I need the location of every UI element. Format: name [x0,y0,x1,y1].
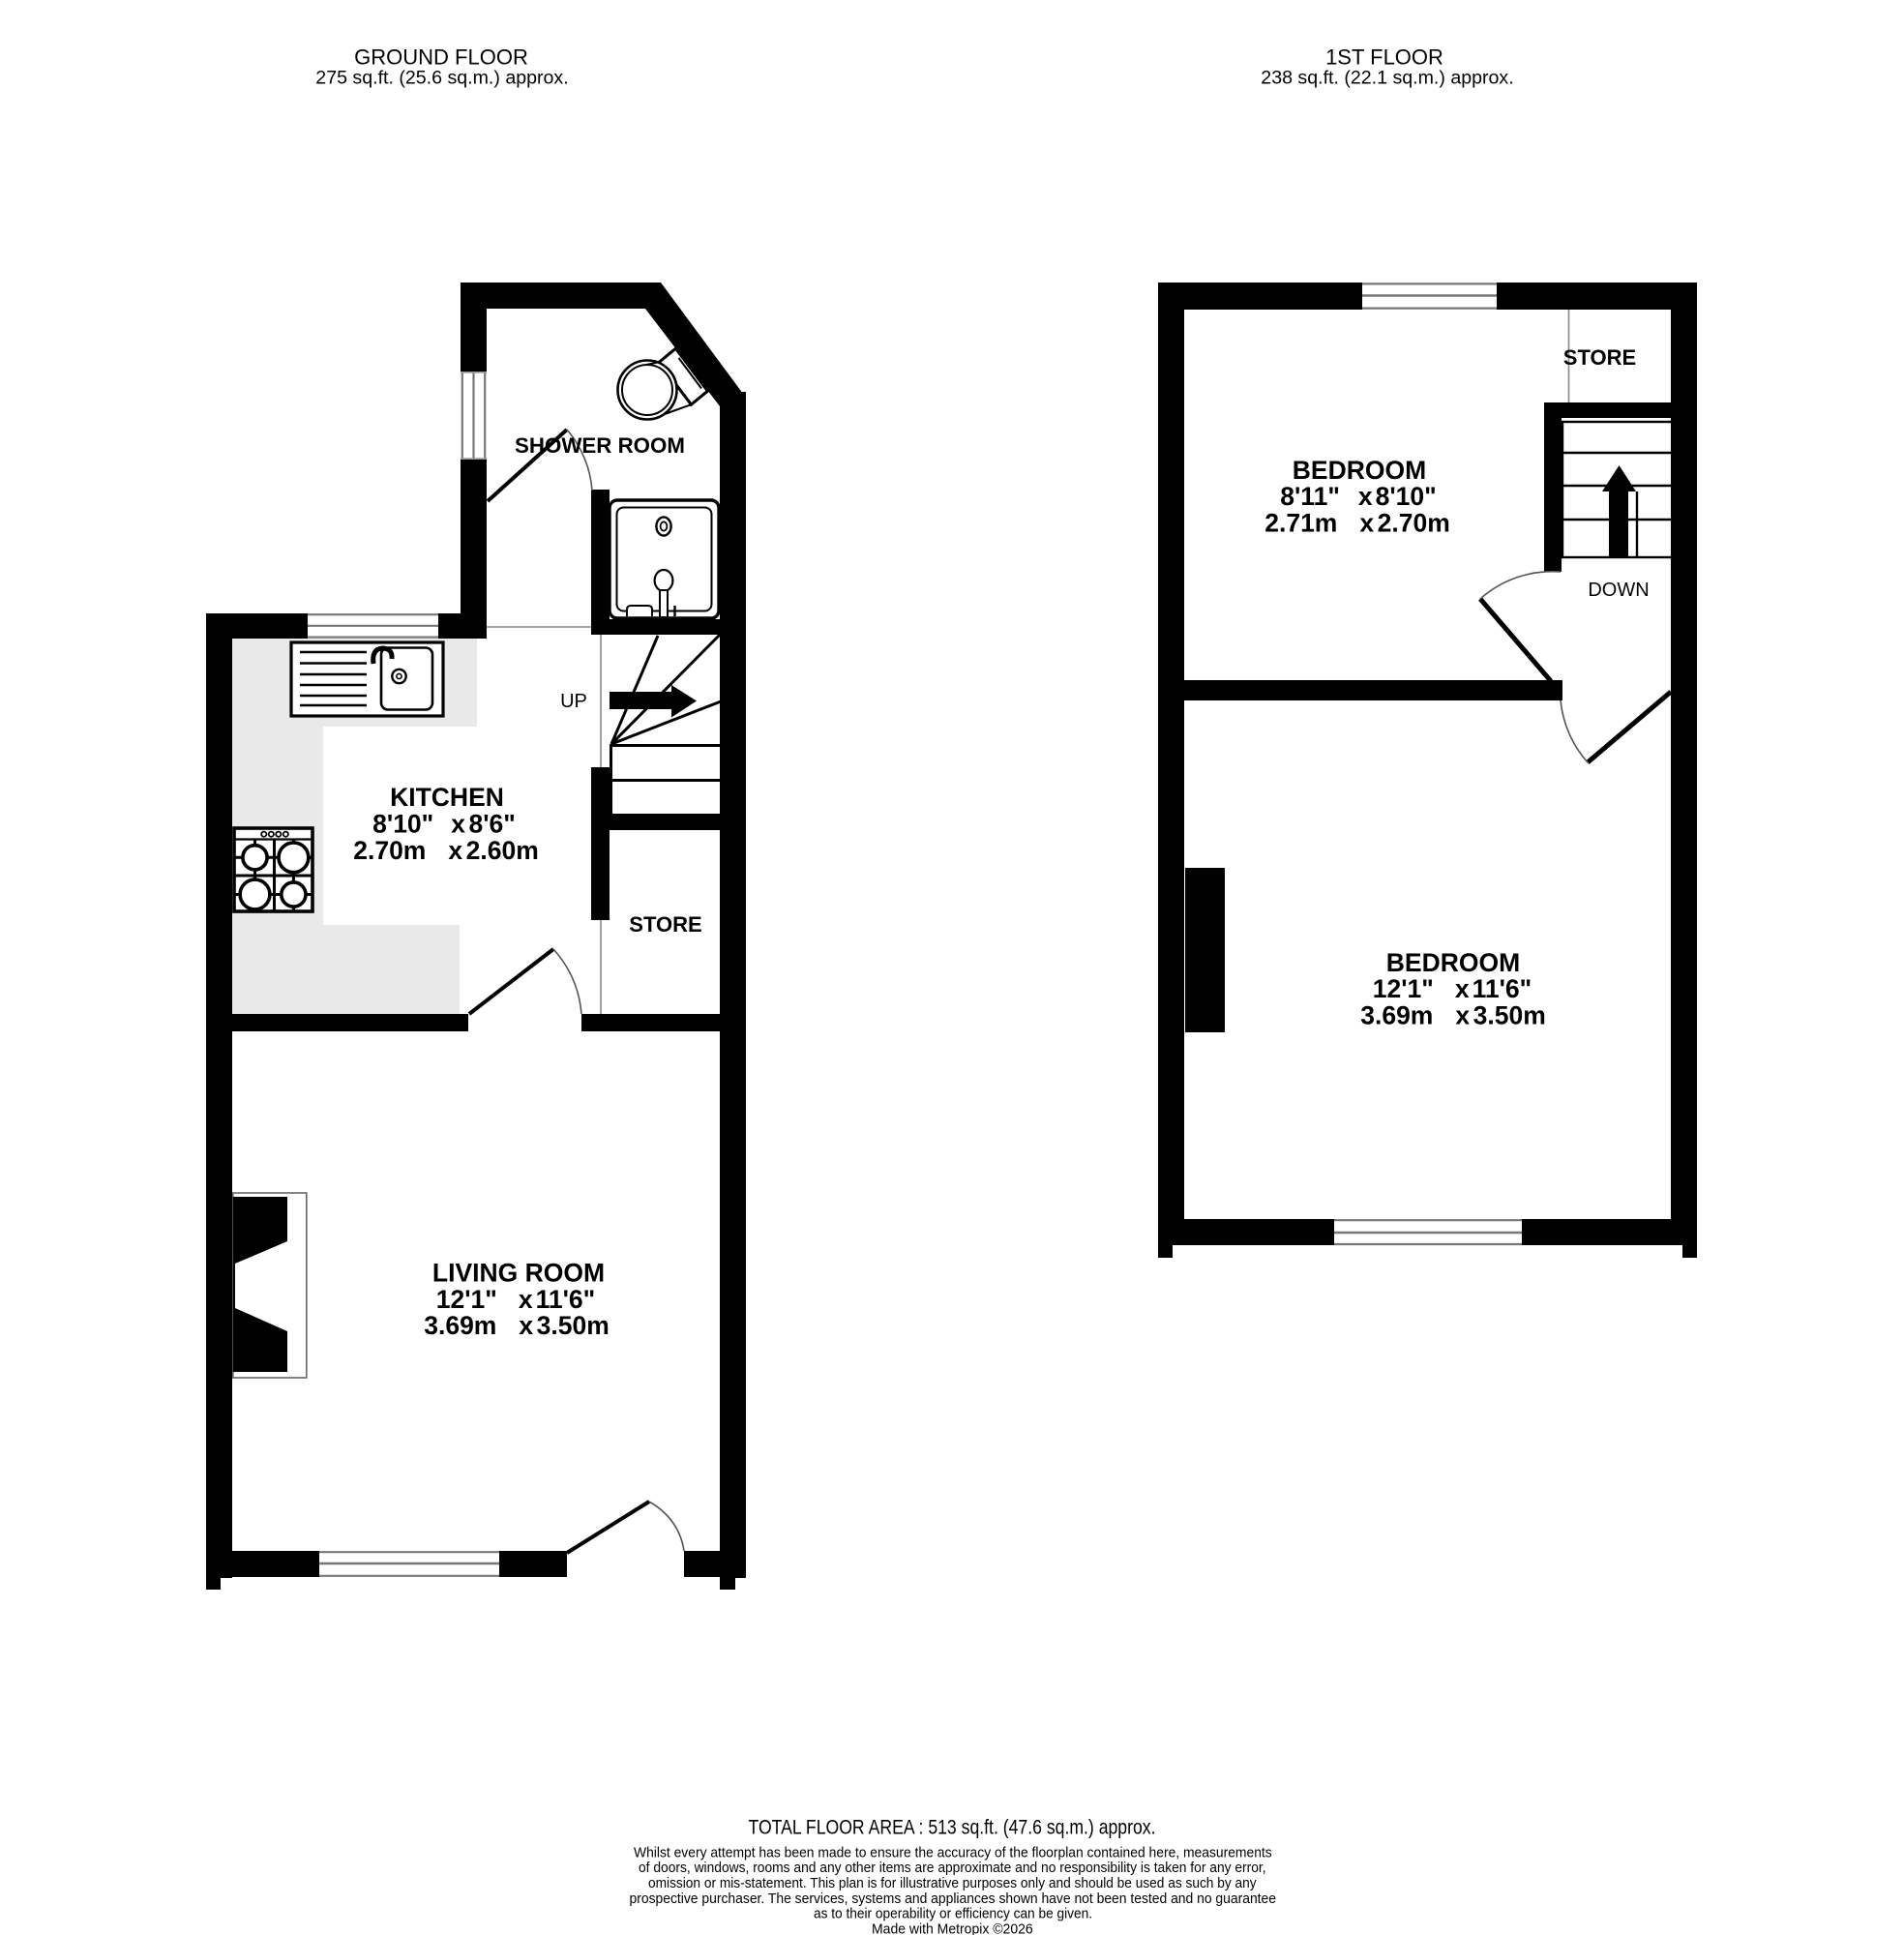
svg-text:8'11"x8'10": 8'11"x8'10" [1280,482,1436,511]
svg-text:DOWN: DOWN [1588,580,1649,601]
svg-text:1ST FLOOR: 1ST FLOOR [1325,45,1443,70]
svg-text:prospective purchaser. The ser: prospective purchaser. The services, sys… [630,1890,1277,1907]
svg-text:of doors, windows, rooms and a: of doors, windows, rooms and any other i… [639,1860,1266,1876]
svg-text:KITCHEN: KITCHEN [390,783,504,812]
svg-text:SHOWER ROOM: SHOWER ROOM [515,433,685,458]
svg-text:238 sq.ft. (22.1 sq.m.) approx: 238 sq.ft. (22.1 sq.m.) approx. [1261,68,1513,89]
svg-text:UP: UP [560,691,587,712]
svg-text:LIVING ROOM: LIVING ROOM [432,1259,605,1288]
svg-text:STORE: STORE [629,912,701,937]
svg-text:Made with Metropix ©2026: Made with Metropix ©2026 [872,1921,1033,1935]
svg-text:275 sq.ft. (25.6 sq.m.) approx: 275 sq.ft. (25.6 sq.m.) approx. [315,68,568,89]
svg-text:GROUND FLOOR: GROUND FLOOR [354,45,528,70]
svg-text:TOTAL FLOOR AREA : 513 sq.ft.: TOTAL FLOOR AREA : 513 sq.ft. (47.6 sq.m… [749,1817,1156,1839]
svg-text:Whilst every attempt has been: Whilst every attempt has been made to en… [634,1845,1272,1861]
svg-text:omission or mis-statement. Thi: omission or mis-statement. This plan is … [648,1875,1257,1891]
svg-text:as to their operability or eff: as to their operability or efficiency ca… [814,1905,1092,1921]
svg-text:STORE: STORE [1563,345,1636,370]
svg-text:BEDROOM: BEDROOM [1293,456,1426,485]
svg-text:BEDROOM: BEDROOM [1386,948,1520,977]
